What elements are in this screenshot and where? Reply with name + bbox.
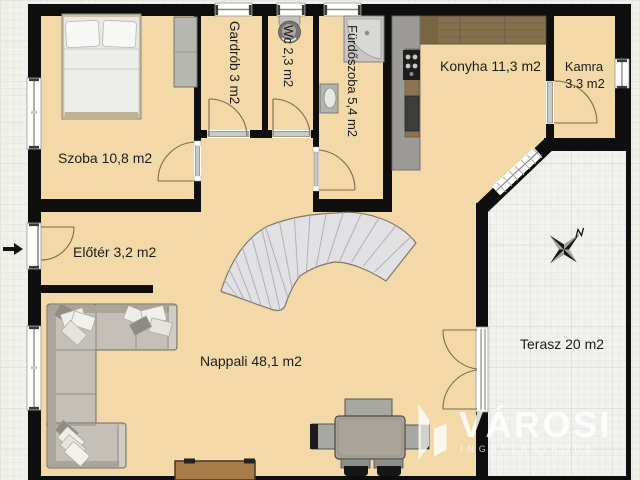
svg-text:Fürdőszoba 5,4 m2: Fürdőszoba 5,4 m2 [345, 25, 360, 137]
svg-text:Konyha 11,3 m2: Konyha 11,3 m2 [440, 58, 541, 74]
svg-text:Nappali 48,1 m2: Nappali 48,1 m2 [200, 353, 302, 369]
svg-text:Előtér 3,2 m2: Előtér 3,2 m2 [73, 244, 156, 260]
svg-text:INGATLANIRODA: INGATLANIRODA [460, 444, 597, 454]
svg-text:Wc 2,3 m2: Wc 2,3 m2 [281, 25, 296, 87]
svg-text:Szoba 10,8 m2: Szoba 10,8 m2 [58, 150, 152, 166]
svg-text:Kamra: Kamra [565, 59, 604, 74]
svg-text:Gardrób 3 m2: Gardrób 3 m2 [227, 21, 242, 104]
svg-text:3.3 m2: 3.3 m2 [565, 76, 605, 91]
svg-text:Terasz 20 m2: Terasz 20 m2 [520, 336, 604, 352]
svg-text:VÁROSI: VÁROSI [459, 404, 612, 445]
